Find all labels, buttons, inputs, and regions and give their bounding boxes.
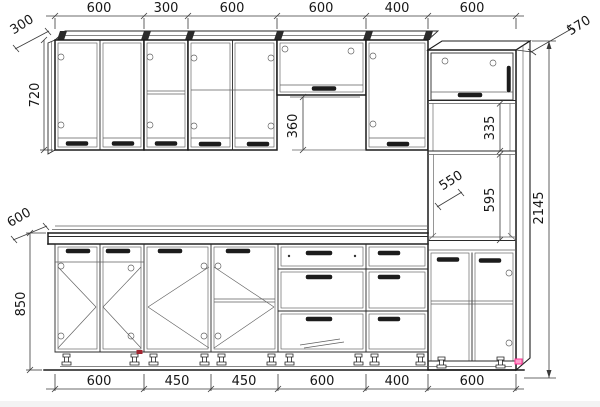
dim-wall-depth: 300 <box>8 12 51 52</box>
wall-cabinet-600-short <box>277 40 366 97</box>
dim-base-height: 850 <box>14 230 46 373</box>
dim-total-height-label: 2145 <box>532 191 547 224</box>
base-cabinet-450-door <box>147 247 209 349</box>
dim-chain-bottom: 600 450 450 600 400 600 <box>46 374 524 392</box>
dim-base-depth: 600 <box>5 205 49 243</box>
dim-wall-depth-label: 300 <box>8 12 37 38</box>
dim-top-3: 600 <box>220 1 245 16</box>
dim-bottom-1: 600 <box>87 374 112 389</box>
dim-top-4: 600 <box>309 1 334 16</box>
tall-cabinet <box>428 41 530 370</box>
base-cabinet-600-drawers <box>278 247 366 349</box>
wall-cabinet-400 <box>366 40 428 150</box>
base-cabinet-400-drawers <box>366 247 428 349</box>
wall-cabinet-300 <box>144 40 188 150</box>
dim-top-1: 600 <box>87 1 112 16</box>
dim-niche-height-label: 595 <box>483 188 498 213</box>
dim-base-height-label: 850 <box>14 292 29 317</box>
dim-tall-depth-label: 570 <box>565 13 594 39</box>
wall-cabinets <box>48 31 438 154</box>
countertop <box>48 226 428 244</box>
dim-wall-height: 720 <box>28 37 53 153</box>
dim-wall-height-label: 720 <box>28 83 43 108</box>
base-cabinet-450-shelf <box>214 247 275 349</box>
cabinet-drawing: 600 300 600 600 400 600 600 450 <box>0 0 600 407</box>
dim-top-2: 300 <box>154 1 179 16</box>
dim-top-5: 400 <box>385 1 410 16</box>
dim-tall-mid-label: 335 <box>483 116 498 141</box>
dim-bottom-6: 600 <box>460 374 485 389</box>
dim-bottom-3: 450 <box>232 374 257 389</box>
base-cabinets <box>55 244 428 352</box>
dim-bottom-2: 450 <box>165 374 190 389</box>
base-cabinet-600-doors <box>55 244 144 352</box>
red-marker <box>137 350 143 354</box>
dim-short-cabinet: 360 <box>286 94 366 153</box>
dim-top-6: 600 <box>460 1 485 16</box>
drawing-canvas: 600 300 600 600 400 600 600 450 <box>0 0 600 407</box>
dim-short-cabinet-label: 360 <box>286 114 301 139</box>
wall-cabinet-600-left <box>55 40 144 150</box>
dim-chain-top: 600 300 600 600 400 600 <box>46 1 524 29</box>
wall-cabinet-600-mid <box>188 40 277 150</box>
page-edge <box>0 401 600 407</box>
dim-bottom-5: 400 <box>385 374 410 389</box>
dim-bottom-4: 600 <box>310 374 335 389</box>
pink-marker <box>515 359 522 364</box>
dim-base-depth-label: 600 <box>5 205 34 230</box>
